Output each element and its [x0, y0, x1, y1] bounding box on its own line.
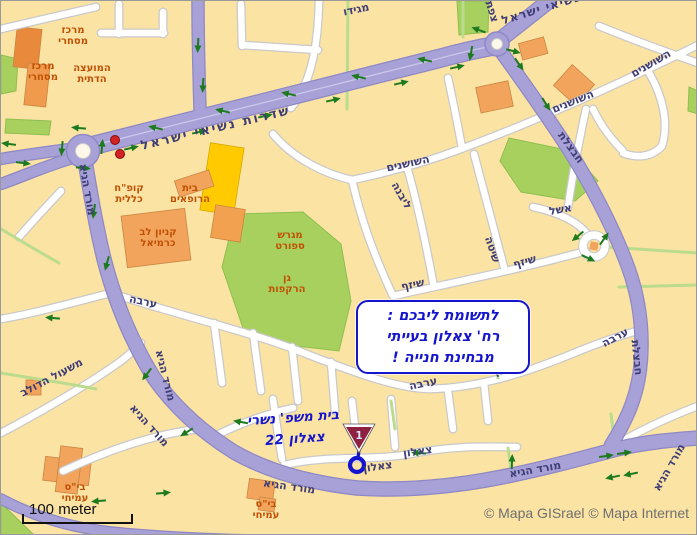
- marker-number: 1: [355, 430, 362, 442]
- annotation-box: לתשומת ליבכם : רח' צאלון בעייתי מבחינת ח…: [356, 300, 530, 374]
- scale-bar: [22, 514, 133, 524]
- poi-label-sports-field: מגרשספורט: [258, 230, 322, 252]
- poi-label-doctors-house: ביתהרופאים: [158, 183, 222, 205]
- annotation-line-2: רח' צאלון בעייתי: [358, 327, 528, 348]
- poi-label-lev-karmiel-mall: קניון לבכרמיאל: [126, 227, 190, 249]
- poi-label-religious-council: המועצההדתית: [60, 63, 124, 85]
- red-dot-icon: [111, 136, 120, 145]
- map-canvas: 1 שדרות נשיאי ישראל שדרות נשיאי ישראל מג…: [0, 0, 697, 535]
- annotation-line-1: לתשומת ליבכם :: [358, 306, 528, 327]
- poi-label-amichai-school: בי"סעמיחי: [234, 499, 298, 521]
- red-dot-icon: [116, 150, 125, 159]
- poi-label-rakafot-garden: גןהרקפות: [255, 273, 319, 295]
- annotation-line-3: מבחינת חנייה !: [358, 348, 528, 369]
- poi-label-clalit-clinic: קופ"חכללית: [97, 183, 161, 205]
- poi-label-commercial-center: מרכזמסחרי: [41, 25, 105, 47]
- attribution: © Mapa GISrael © Mapa Internet: [484, 505, 689, 521]
